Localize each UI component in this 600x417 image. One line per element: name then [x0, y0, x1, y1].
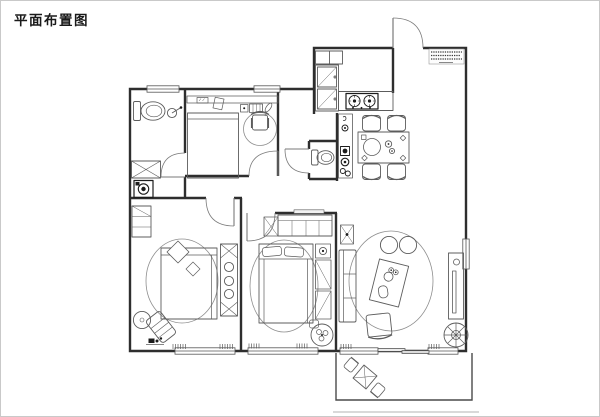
bathroom-main [132, 102, 183, 198]
bedroom-left [132, 206, 238, 349]
spec-annotation [429, 49, 464, 64]
window-top-bathroom [147, 86, 179, 92]
console-decor [340, 117, 350, 177]
bedroom-middle [249, 210, 333, 349]
bath-cabinet [132, 161, 161, 178]
toilet-small [312, 150, 335, 165]
small-cabinet [264, 217, 278, 236]
powder-room [312, 150, 335, 165]
armchair [366, 313, 392, 340]
dining-chair [363, 164, 381, 180]
floor-plan-canvas [1, 1, 600, 417]
doors [161, 18, 423, 241]
windows [147, 86, 469, 354]
nightstand [316, 244, 331, 258]
window-bedroom-left [175, 348, 235, 354]
coffee-table [369, 259, 408, 307]
window-living-right [428, 348, 458, 354]
kitchen-stove [346, 94, 378, 110]
wardrobe [278, 215, 332, 236]
washing-machine [134, 181, 153, 198]
pillow [262, 246, 282, 257]
rugs [146, 113, 433, 333]
pouf [380, 236, 397, 253]
desk-shelf [187, 96, 278, 110]
balcony-chair [370, 382, 385, 398]
pouf [399, 236, 416, 253]
console-shelf [339, 114, 353, 178]
entry-door [393, 18, 423, 48]
tv-cabinet [449, 253, 464, 319]
wall-shelf [294, 210, 324, 214]
furniture [132, 51, 469, 398]
balcony-bistro-table [353, 365, 377, 389]
bathroom-door [161, 153, 185, 177]
pillow [186, 262, 200, 276]
bedroom-left-door [206, 198, 234, 226]
pillow [284, 247, 304, 257]
dining-chair [388, 164, 406, 180]
floor-lamp [146, 337, 164, 344]
office-chair [251, 112, 269, 131]
outer-walls [129, 47, 467, 352]
dining-area [339, 114, 410, 180]
round-rug-living [349, 231, 433, 331]
study [187, 96, 278, 178]
potted-plant [444, 323, 468, 347]
living-room [339, 225, 468, 349]
wall-art [341, 225, 354, 244]
sliding-door-balcony [378, 349, 429, 354]
chair-mat-study [244, 113, 277, 146]
dining-chair [388, 116, 406, 132]
window-top-study [254, 86, 280, 92]
balcony-chair [343, 357, 358, 373]
study-door [249, 151, 278, 176]
floor-plan-page: 平面布置图 [0, 0, 600, 417]
dining-chair [363, 116, 381, 132]
side-table [133, 311, 150, 328]
balcony [343, 357, 385, 398]
shower-head [167, 106, 182, 117]
upper-cabinet [316, 51, 343, 64]
window-bedroom-middle [248, 348, 318, 354]
toilet [134, 102, 166, 121]
dining-table [358, 132, 409, 163]
single-bed [188, 113, 239, 178]
balcony-walls [336, 353, 472, 400]
wardrobe [132, 206, 151, 237]
sofa [339, 250, 356, 322]
plant-table [310, 320, 334, 346]
dresser [221, 244, 238, 316]
tall-cabinet [316, 65, 339, 111]
kitchen [316, 51, 394, 111]
double-bed [259, 244, 313, 323]
powder-room-door [285, 149, 309, 173]
walls [129, 47, 467, 352]
pillow [167, 241, 189, 263]
balcony-shell [336, 353, 472, 400]
